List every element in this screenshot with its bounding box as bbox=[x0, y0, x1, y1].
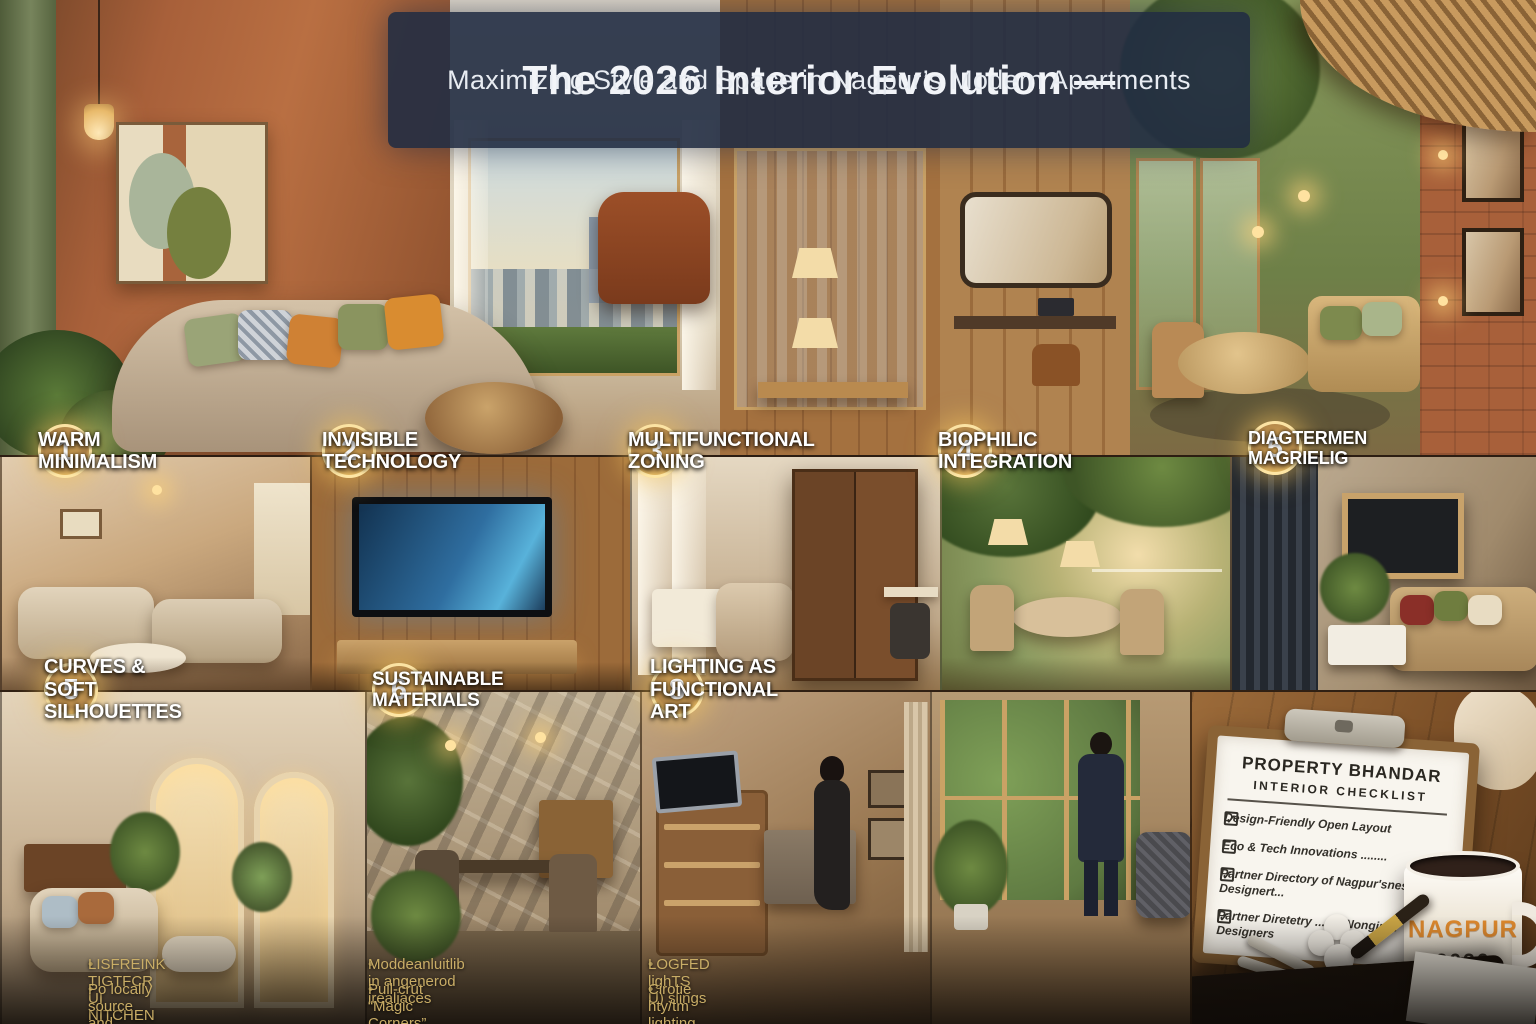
armchair bbox=[716, 583, 794, 661]
shelf bbox=[664, 862, 760, 868]
window bbox=[254, 483, 310, 615]
dining-chair bbox=[970, 585, 1014, 651]
pendant-light-icon bbox=[1252, 226, 1264, 238]
footnote-text: Pull-crut “Magic Corners” tight Gings bbox=[368, 981, 426, 1024]
study-desk bbox=[954, 316, 1116, 329]
mug-opening bbox=[1410, 855, 1516, 877]
indoor-plant bbox=[1320, 553, 1390, 623]
stool bbox=[1032, 344, 1080, 386]
desk-chair bbox=[890, 603, 930, 659]
pillow bbox=[286, 313, 345, 368]
panel-invisible-technology bbox=[310, 457, 630, 690]
office-desk bbox=[758, 382, 908, 398]
planter-pot bbox=[954, 904, 988, 930]
mug-brand-text: NAGPUR bbox=[1404, 916, 1522, 944]
pendant-light-icon bbox=[445, 740, 456, 751]
trend-label: LIGHTING AS FUNCTIONAL ART bbox=[650, 656, 778, 723]
dining-chair bbox=[549, 854, 597, 932]
floor-lamp-icon bbox=[1060, 541, 1100, 567]
man-silhouette-leg bbox=[1084, 860, 1098, 916]
pillow bbox=[238, 310, 292, 360]
trend-row-1 bbox=[0, 455, 1536, 690]
desk bbox=[884, 587, 938, 597]
wall-art bbox=[60, 509, 102, 539]
dark-slat-divider bbox=[1232, 457, 1318, 690]
woman-silhouette bbox=[814, 780, 850, 910]
pillow bbox=[1320, 306, 1362, 340]
trend-label: WARM MINIMALISM bbox=[38, 429, 157, 474]
curtain bbox=[904, 702, 928, 952]
man-silhouette-leg bbox=[1104, 860, 1118, 916]
balcony-rail bbox=[1092, 569, 1222, 572]
trend-row-2: PROPERTY BHANDAR INTERIOR CHECKLIST ✓ De… bbox=[0, 690, 1536, 1024]
man-silhouette-head bbox=[1090, 732, 1112, 756]
checklist-item-text: Design-Friendly Open Layout bbox=[1224, 810, 1392, 837]
panel-biophilic-integration bbox=[940, 457, 1230, 690]
footnote-text: Po locally source and receailned wood bbox=[88, 981, 157, 1024]
pendant-light-icon bbox=[535, 732, 546, 743]
title-band: The 2026 Interior Evolution — Maximizing… bbox=[388, 12, 1250, 148]
indoor-plant bbox=[232, 842, 292, 912]
panel-atrium-viewing bbox=[930, 692, 1190, 1024]
shelf bbox=[664, 900, 760, 906]
panel-curves-soft-silhouettes bbox=[0, 692, 365, 1024]
pendant-lamp-icon bbox=[792, 318, 838, 348]
clipboard-clip-knob bbox=[1334, 720, 1353, 733]
floor-shadow bbox=[942, 657, 1230, 690]
panel-desk-checklist-scene: PROPERTY BHANDAR INTERIOR CHECKLIST ✓ De… bbox=[1190, 692, 1536, 1024]
trend-label: INVISIBLE TECHNOLOGY bbox=[322, 429, 461, 474]
pillow bbox=[1400, 595, 1434, 625]
checklist-item: ✓ Eco & Tech Innovations ........ bbox=[1223, 838, 1448, 854]
pendant-lamp-icon bbox=[792, 248, 838, 278]
framed-photo bbox=[1462, 228, 1524, 316]
pillow bbox=[383, 293, 444, 351]
pillow bbox=[78, 892, 114, 924]
laptop bbox=[1038, 298, 1074, 316]
pendant-lamp-icon bbox=[84, 104, 114, 140]
potted-plant bbox=[371, 870, 461, 962]
glass-office-pod bbox=[734, 148, 926, 410]
ottoman bbox=[162, 936, 236, 972]
round-dining-table bbox=[1178, 332, 1310, 394]
wall-tv bbox=[352, 497, 552, 617]
trend-label: CURVES & SOFT SILHOUETTES bbox=[44, 656, 182, 723]
man-silhouette bbox=[1078, 754, 1124, 862]
display-shelf-unit bbox=[656, 790, 768, 956]
tv-screen bbox=[359, 504, 545, 610]
indoor-plant bbox=[110, 812, 180, 892]
wall-mirror bbox=[960, 192, 1112, 288]
potted-plant bbox=[934, 820, 1008, 916]
abstract-art-frame bbox=[116, 122, 268, 284]
floor-lamp-icon bbox=[988, 519, 1028, 545]
pendant-cord bbox=[98, 0, 100, 104]
dining-table bbox=[1012, 597, 1122, 637]
panel-statement-lounge bbox=[1230, 457, 1536, 690]
pillow bbox=[1434, 591, 1468, 621]
pillow bbox=[42, 896, 78, 928]
wall-sconce-icon bbox=[1438, 150, 1448, 160]
shelf bbox=[664, 824, 760, 830]
trend-label: SUSTAINABLE MATERIALS bbox=[372, 669, 504, 712]
trend-label: BIOPHILIC INTEGRATION bbox=[938, 429, 1072, 474]
poster-canvas: The 2026 Interior Evolution — Maximizing… bbox=[0, 0, 1536, 1024]
pendant-light-icon bbox=[1298, 190, 1310, 202]
pillow bbox=[1468, 595, 1502, 625]
pillow bbox=[1362, 302, 1402, 336]
checklist-item-text: Eco & Tech Innovations ........ bbox=[1222, 838, 1388, 865]
trend-label: DIAGTERMEN MAGRIELIG bbox=[1248, 428, 1367, 468]
armchair bbox=[1136, 832, 1190, 918]
woman-silhouette-head bbox=[820, 756, 844, 782]
hero-collage: The 2026 Interior Evolution — Maximizing… bbox=[0, 0, 1536, 455]
ceiling-light-icon bbox=[152, 485, 162, 495]
dining-chair bbox=[1120, 589, 1164, 655]
monitor bbox=[652, 750, 743, 813]
pillow bbox=[338, 304, 388, 350]
trend-label: MULTIFUNCTIONAL ZONING bbox=[628, 429, 814, 474]
leather-armchair bbox=[598, 192, 710, 304]
side-table bbox=[652, 589, 724, 647]
coffee-table bbox=[1328, 625, 1406, 665]
poster-subtitle: Maximizing Style and Space in Nagpur’s M… bbox=[447, 65, 1191, 96]
wall-sconce-icon bbox=[1438, 296, 1448, 306]
art-olive-shape bbox=[167, 187, 231, 279]
footnote-text: Cirotie hty/tm lighting bbox=[648, 981, 696, 1024]
